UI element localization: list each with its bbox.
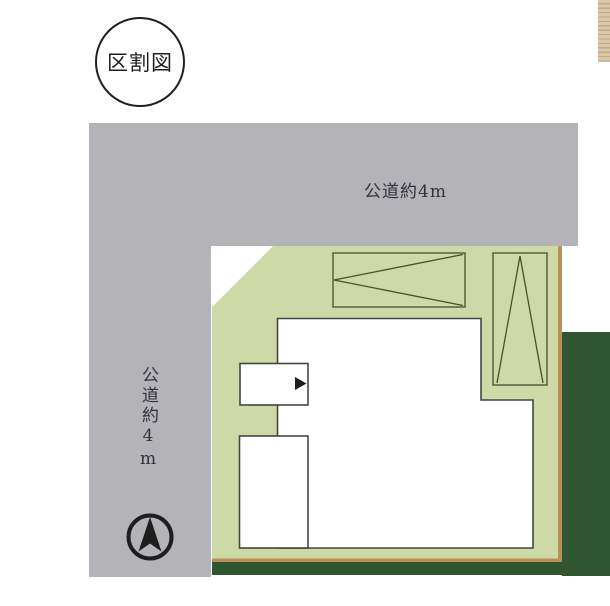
road-label-top: 公道約4m [364,177,447,202]
boundary-strip-bottom [212,559,562,563]
greenery-bottom [212,562,610,575]
site-plan-svg [0,0,610,606]
deck-texture-strip [598,0,610,62]
greenery-right [562,332,610,576]
road-label-left: 公道約4m [136,366,161,472]
map-title: 区割図 [107,47,173,77]
building-annex [240,436,309,548]
boundary-strip-right [558,246,562,562]
map-title-badge: 区割図 [95,17,185,107]
road-left [89,123,211,577]
plot-map: 区割図 公道約4m 公道約4m [0,0,610,606]
